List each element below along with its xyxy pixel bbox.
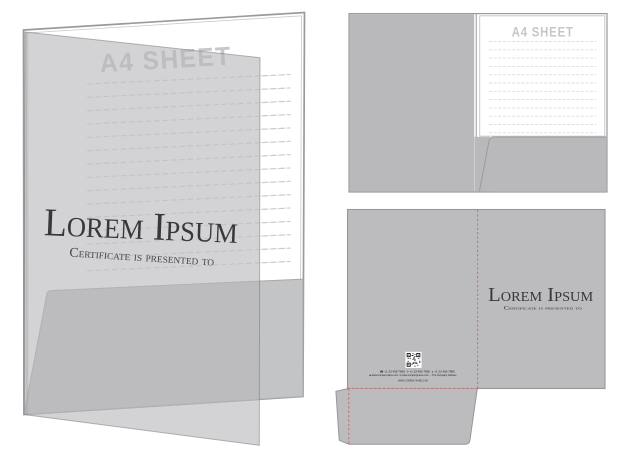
svg-text:Lorem Ipsum: Lorem Ipsum (488, 284, 594, 306)
svg-text:■ www.companyname.com ✉ www.c: ■ www.companyname.com ✉ www.companyname.… (370, 374, 458, 377)
svg-text:WWW.COMPANYNAME.COM: WWW.COMPANYNAME.COM (398, 379, 428, 383)
svg-text:Certificate is presented to: Certificate is presented to (504, 307, 583, 312)
svg-text:A4 SHEET: A4 SHEET (512, 24, 574, 39)
